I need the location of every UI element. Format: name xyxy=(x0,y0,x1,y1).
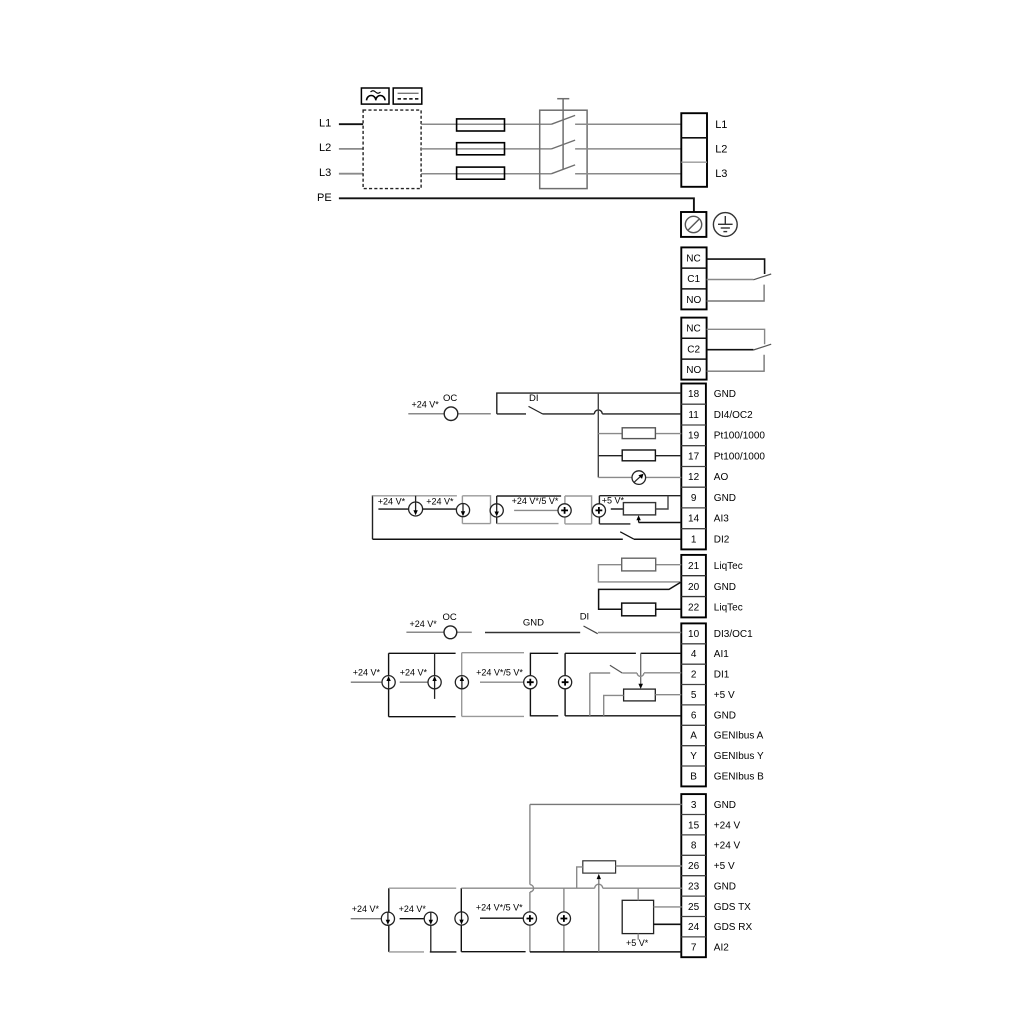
svg-text:L3: L3 xyxy=(319,167,331,179)
svg-text:+24 V*/5 V*: +24 V*/5 V* xyxy=(512,496,559,506)
svg-text:GENIbus B: GENIbus B xyxy=(714,771,764,782)
svg-text:LiqTec: LiqTec xyxy=(714,561,743,572)
svg-text:+24 V*/5 V*: +24 V*/5 V* xyxy=(476,668,523,678)
svg-text:18: 18 xyxy=(688,389,700,400)
svg-text:Pt100/1000: Pt100/1000 xyxy=(714,451,766,462)
svg-text:GND: GND xyxy=(714,800,736,811)
svg-text:20: 20 xyxy=(688,582,700,593)
svg-text:L2: L2 xyxy=(715,144,727,156)
svg-text:+5 V: +5 V xyxy=(714,861,735,872)
svg-text:26: 26 xyxy=(688,861,700,872)
svg-text:14: 14 xyxy=(688,514,700,525)
svg-text:+24 V*: +24 V* xyxy=(378,496,406,506)
svg-text:AI2: AI2 xyxy=(714,943,729,954)
svg-text:AI3: AI3 xyxy=(714,514,729,525)
svg-text:GND: GND xyxy=(714,582,736,593)
svg-text:OC: OC xyxy=(443,393,457,404)
svg-text:+24 V*: +24 V* xyxy=(353,667,381,677)
svg-text:+24 V: +24 V xyxy=(714,820,741,831)
svg-text:NO: NO xyxy=(686,365,701,376)
svg-text:GND: GND xyxy=(714,389,736,400)
svg-text:L2: L2 xyxy=(319,142,331,154)
svg-text:AO: AO xyxy=(714,472,729,483)
svg-text:23: 23 xyxy=(688,882,700,893)
svg-text:Y: Y xyxy=(690,751,697,762)
svg-text:DI3/OC1: DI3/OC1 xyxy=(714,629,753,640)
svg-text:GND: GND xyxy=(714,493,736,504)
svg-text:PE: PE xyxy=(317,192,332,204)
svg-text:9: 9 xyxy=(691,493,697,504)
svg-text:DI: DI xyxy=(580,611,590,622)
svg-text:+24 V*: +24 V* xyxy=(412,400,440,410)
svg-text:+24 V*: +24 V* xyxy=(400,667,428,677)
svg-text:+5 V*: +5 V* xyxy=(626,938,649,948)
svg-text:+24 V*/5 V*: +24 V*/5 V* xyxy=(476,903,523,913)
svg-text:C2: C2 xyxy=(687,344,700,355)
svg-text:GENIbus Y: GENIbus Y xyxy=(714,751,764,762)
svg-text:L1: L1 xyxy=(319,118,331,130)
svg-text:8: 8 xyxy=(691,841,697,852)
svg-text:2: 2 xyxy=(691,670,697,681)
svg-text:15: 15 xyxy=(688,820,700,831)
svg-text:DI1: DI1 xyxy=(714,670,730,681)
svg-text:GND: GND xyxy=(714,882,736,893)
svg-text:10: 10 xyxy=(688,629,700,640)
svg-text:+5 V*: +5 V* xyxy=(602,495,625,505)
svg-text:6: 6 xyxy=(691,710,697,721)
svg-text:B: B xyxy=(690,771,697,782)
svg-text:19: 19 xyxy=(688,431,700,442)
svg-text:22: 22 xyxy=(688,603,700,614)
svg-text:17: 17 xyxy=(688,451,700,462)
svg-text:GENIbus A: GENIbus A xyxy=(714,731,764,742)
svg-text:7: 7 xyxy=(691,943,697,954)
svg-text:21: 21 xyxy=(688,561,700,572)
svg-text:+5 V: +5 V xyxy=(714,690,735,701)
svg-text:C1: C1 xyxy=(687,274,700,285)
svg-text:DI4/OC2: DI4/OC2 xyxy=(714,410,753,421)
svg-text:12: 12 xyxy=(688,472,700,483)
svg-text:+24 V: +24 V xyxy=(714,841,741,852)
svg-text:+24 V*: +24 V* xyxy=(399,904,427,914)
svg-text:NO: NO xyxy=(686,295,701,306)
svg-text:A: A xyxy=(690,731,697,742)
svg-text:AI1: AI1 xyxy=(714,649,729,660)
svg-text:LiqTec: LiqTec xyxy=(714,603,743,614)
svg-text:L1: L1 xyxy=(715,119,727,131)
svg-text:Pt100/1000: Pt100/1000 xyxy=(714,431,766,442)
svg-text:DI: DI xyxy=(529,393,539,404)
svg-text:+24 V*: +24 V* xyxy=(410,619,438,629)
svg-text:1: 1 xyxy=(691,534,697,545)
svg-text:11: 11 xyxy=(688,410,699,421)
svg-text:GND: GND xyxy=(714,710,736,721)
svg-text:+24 V*: +24 V* xyxy=(426,496,454,506)
svg-text:GDS TX: GDS TX xyxy=(714,902,751,913)
svg-text:GND: GND xyxy=(523,618,544,629)
svg-text:5: 5 xyxy=(691,690,697,701)
svg-text:OC: OC xyxy=(443,612,457,623)
svg-text:3: 3 xyxy=(691,800,697,811)
svg-text:NC: NC xyxy=(686,254,700,265)
svg-text:+24 V*: +24 V* xyxy=(352,904,380,914)
svg-text:25: 25 xyxy=(688,902,700,913)
svg-text:NC: NC xyxy=(686,324,700,335)
svg-text:24: 24 xyxy=(688,922,700,933)
svg-text:DI2: DI2 xyxy=(714,534,730,545)
svg-text:4: 4 xyxy=(691,649,697,660)
svg-text:GDS RX: GDS RX xyxy=(714,922,753,933)
svg-text:L3: L3 xyxy=(715,168,727,180)
